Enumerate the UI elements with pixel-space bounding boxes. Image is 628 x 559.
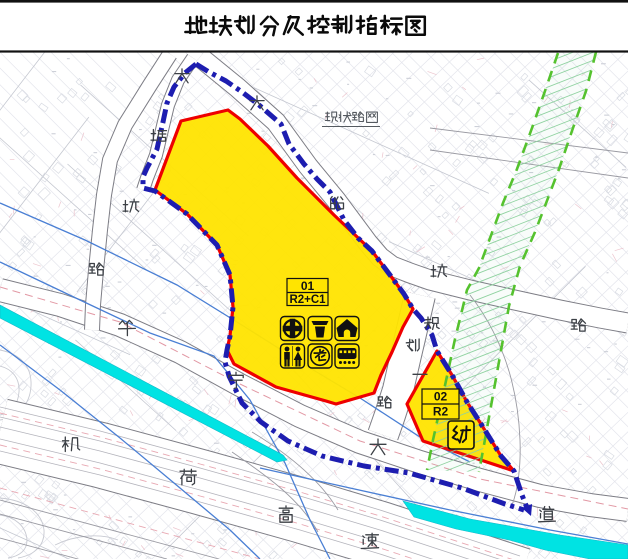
svg-text:02: 02 xyxy=(434,390,448,404)
svg-text:01: 01 xyxy=(301,279,315,293)
svg-text:R2+C1: R2+C1 xyxy=(289,294,326,306)
svg-text:R2: R2 xyxy=(433,405,449,419)
